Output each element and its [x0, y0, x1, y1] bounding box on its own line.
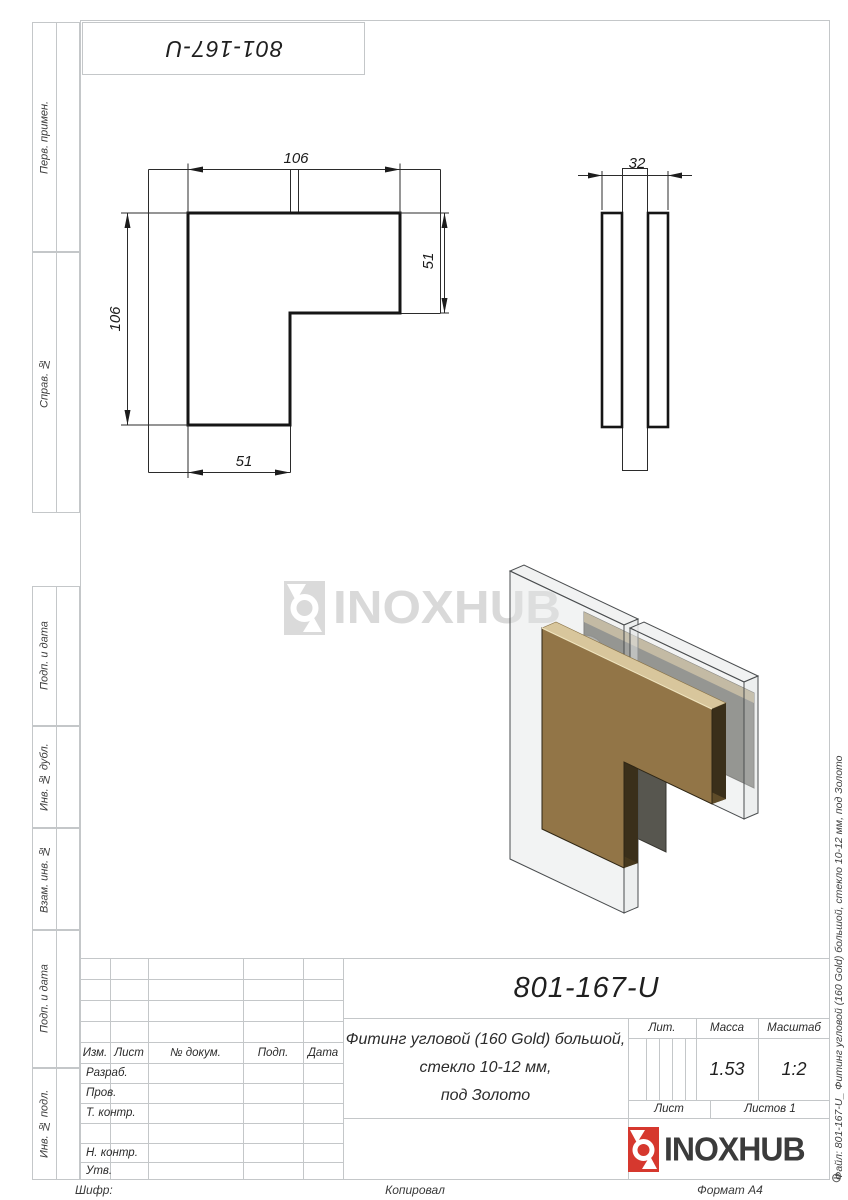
iso-view: [510, 565, 758, 913]
tb-col-list: Лист: [110, 1042, 148, 1063]
tb-row-nkontr: Н. контр.: [80, 1143, 148, 1162]
front-dim-top: 106: [188, 150, 400, 213]
side-view-glass-edge: [623, 169, 648, 471]
inoxhub-logo-icon: [628, 1127, 659, 1172]
drawing-sheet: Перв. примен. Справ. № Подп. и дата Инв.…: [0, 0, 848, 1200]
side-view: 32: [578, 155, 692, 471]
footer-cipher: Шифр:: [75, 1183, 113, 1197]
side-view-left-plate: [602, 213, 622, 427]
tb-description-line2: стекло 10-12 мм,: [420, 1054, 552, 1082]
footer-copied: Копировал: [345, 1183, 485, 1197]
tb-row-prov: Пров.: [80, 1083, 148, 1103]
tb-col-podp: Подп.: [243, 1042, 303, 1063]
tb-scale-value: 1:2: [758, 1038, 830, 1100]
footer-format: Формат А4: [672, 1183, 788, 1197]
tb-description-line1: Фитинг угловой (160 Gold) большой,: [346, 1026, 625, 1054]
tb-logo: INOXHUB: [628, 1118, 830, 1180]
side-dim-width: 32: [578, 155, 692, 210]
tb-row-tkontr: Т. контр.: [80, 1103, 148, 1123]
svg-text:32: 32: [629, 155, 646, 172]
side-view-right-plate: [648, 213, 668, 427]
tb-col-data: Дата: [303, 1042, 343, 1063]
front-view-glass-edges: [149, 170, 441, 473]
tb-row-razrab: Разраб.: [80, 1063, 148, 1083]
tb-designation: 801-167-U: [343, 958, 830, 1018]
tb-mass-label: Масса: [696, 1018, 758, 1038]
tb-logo-brand-text: INOXHUB: [664, 1130, 805, 1169]
tb-col-izm: Изм.: [80, 1042, 110, 1063]
svg-text:106: 106: [107, 306, 124, 332]
tb-mass-value: 1.53: [696, 1038, 758, 1100]
tb-row-utv: Утв.: [80, 1162, 148, 1180]
front-dim-right: 51: [400, 213, 449, 313]
tb-sheet-label: Лист: [628, 1100, 710, 1118]
tb-scale-label: Масштаб: [758, 1018, 830, 1038]
svg-text:51: 51: [236, 453, 253, 470]
tb-col-doc: № докум.: [148, 1042, 243, 1063]
tb-sheets-label: Листов 1: [710, 1100, 830, 1118]
tb-description-line3: под Золото: [441, 1082, 530, 1110]
svg-text:51: 51: [420, 253, 437, 270]
front-view-fitting-outline: [188, 213, 400, 425]
tb-description: Фитинг угловой (160 Gold) большой, стекл…: [343, 1018, 628, 1118]
file-note: Файл: 801-167-U_ Фитинг угловой (160 Gol…: [833, 724, 846, 1180]
tb-lit-label: Лит.: [628, 1018, 696, 1038]
front-view: 106 106 51 51: [107, 150, 449, 478]
front-dim-left: 106: [107, 213, 188, 425]
svg-text:106: 106: [283, 150, 309, 167]
front-dim-bottom: 51: [188, 425, 290, 478]
